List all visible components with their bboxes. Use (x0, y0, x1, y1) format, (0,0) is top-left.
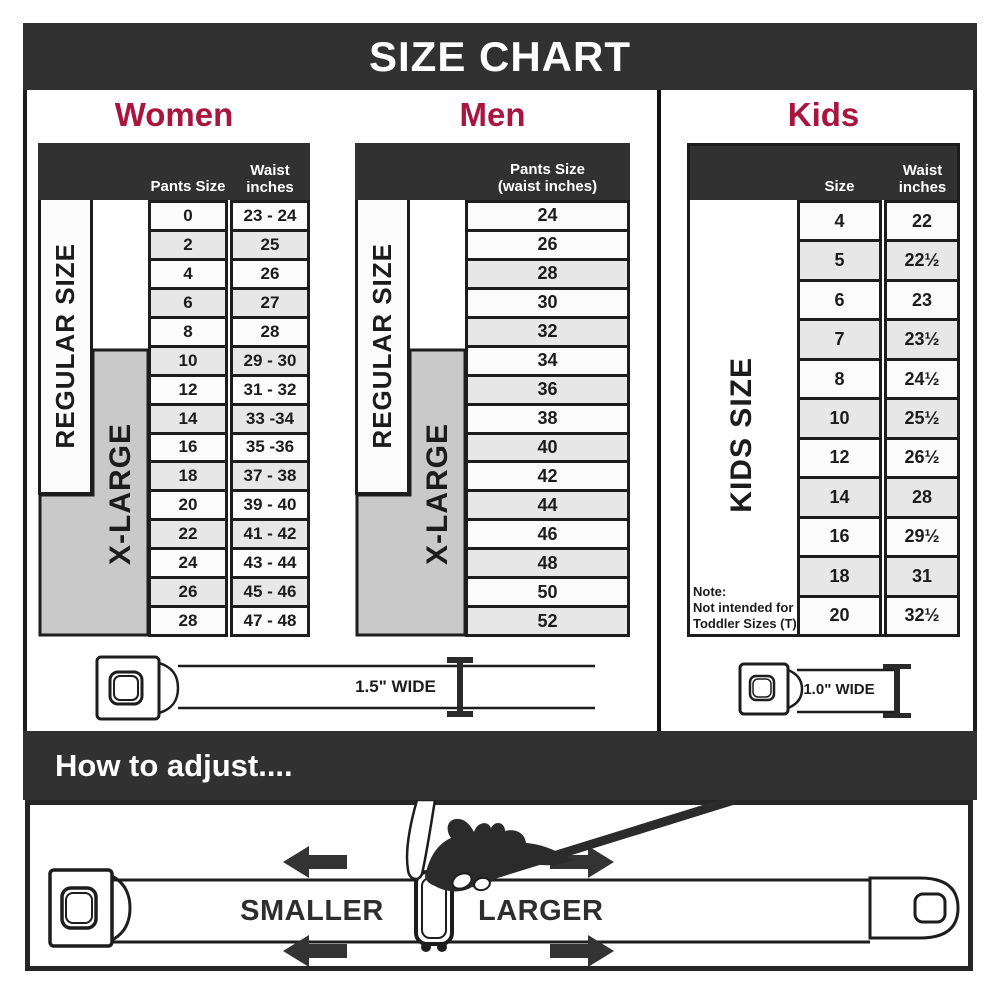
table-cell: 40 (465, 432, 630, 464)
men-heading: Men (355, 96, 630, 134)
adjust-belt-illustration (25, 800, 973, 971)
adjust-heading: How to adjust.... (23, 748, 293, 784)
men-regular-size-box: REGULAR SIZE (355, 200, 410, 495)
kids-size-zone: KIDS SIZE Note: Not intended for Toddler… (687, 200, 797, 637)
table-cell: 14 (148, 403, 228, 435)
table-cell: 46 (465, 518, 630, 550)
table-cell: 26 (148, 576, 228, 608)
table-cell: 8 (797, 358, 882, 400)
seatbelt-buckle-icon (97, 657, 178, 719)
table-cell: 7 (797, 318, 882, 360)
women-size-zone: REGULAR SIZE X-LARGE (38, 200, 148, 637)
table-cell: 25 (230, 229, 310, 261)
table-row: 1635 -36 (148, 432, 310, 464)
table-row: 44 (465, 489, 630, 521)
table-row: 46 (465, 518, 630, 550)
table-cell: 32½ (884, 595, 960, 637)
table-cell: 24 (148, 547, 228, 579)
table-row: 2443 - 44 (148, 547, 310, 579)
belt-tip-icon (870, 878, 958, 938)
table-cell: 16 (148, 432, 228, 464)
table-row: 824½ (797, 358, 960, 400)
table-cell: 48 (465, 547, 630, 579)
table-cell: 12 (797, 437, 882, 479)
kids-heading: Kids (687, 96, 960, 134)
hand-pull-illustration (407, 800, 731, 892)
women-table-header: Pants Size Waist inches (38, 143, 310, 200)
table-row: 522½ (797, 239, 960, 281)
table-row: 24 (465, 200, 630, 232)
women-col1-header: Pants Size (148, 178, 228, 195)
table-cell: 31 (884, 555, 960, 597)
table-cell: 35 -36 (230, 432, 310, 464)
table-cell: 6 (797, 279, 882, 321)
table-row: 1226½ (797, 437, 960, 479)
table-cell: 23½ (884, 318, 960, 360)
men-col-header: Pants Size (waist inches) (465, 161, 630, 195)
table-row: 1629½ (797, 516, 960, 558)
men-table-header: Pants Size (waist inches) (355, 143, 630, 200)
table-cell: 28 (148, 605, 228, 637)
table-cell: 50 (465, 576, 630, 608)
table-cell: 52 (465, 605, 630, 637)
table-cell: 32 (465, 316, 630, 348)
men-table-rows: 242628303234363840424446485052 (465, 200, 630, 637)
women-heading: Women (38, 96, 310, 134)
table-row: 42 (465, 460, 630, 492)
table-cell: 26 (230, 258, 310, 290)
table-cell: 29 - 30 (230, 345, 310, 377)
women-col2-header: Waist inches (230, 162, 310, 196)
table-row: 30 (465, 287, 630, 319)
table-cell: 42 (465, 460, 630, 492)
table-cell: 39 - 40 (230, 489, 310, 521)
table-cell: 30 (465, 287, 630, 319)
table-cell: 22 (148, 518, 228, 550)
table-row: 1433 -34 (148, 403, 310, 435)
kids-col2-header: Waist inches (885, 162, 960, 196)
table-row: 26 (465, 229, 630, 261)
table-row: 38 (465, 403, 630, 435)
table-row: 623 (797, 279, 960, 321)
table-cell: 36 (465, 374, 630, 406)
arrow-right-icon (550, 935, 614, 967)
table-row: 2039 - 40 (148, 489, 310, 521)
table-row: 34 (465, 345, 630, 377)
men-regular-size-label: REGULAR SIZE (367, 243, 398, 449)
table-cell: 4 (148, 258, 228, 290)
table-row: 422 (797, 200, 960, 242)
table-row: 828 (148, 316, 310, 348)
women-regular-size-box: REGULAR SIZE (38, 200, 93, 495)
table-cell: 23 (884, 279, 960, 321)
table-row: 1025½ (797, 397, 960, 439)
women-regular-size-label: REGULAR SIZE (50, 243, 81, 449)
table-cell: 31 - 32 (230, 374, 310, 406)
table-cell: 37 - 38 (230, 460, 310, 492)
table-cell: 33 -34 (230, 403, 310, 435)
kids-size-label: KIDS SIZE (725, 357, 759, 513)
women-xlarge-label: X-LARGE (104, 423, 138, 565)
table-cell: 14 (797, 476, 882, 518)
table-cell: 10 (797, 397, 882, 439)
table-cell: 27 (230, 287, 310, 319)
table-cell: 2 (148, 229, 228, 261)
kids-table-header: Size Waist inches (687, 143, 960, 200)
men-size-zone: REGULAR SIZE X-LARGE (355, 200, 465, 637)
table-cell: 18 (148, 460, 228, 492)
table-row: 40 (465, 432, 630, 464)
table-cell: 28 (884, 476, 960, 518)
table-row: 426 (148, 258, 310, 290)
table-row: 1029 - 30 (148, 345, 310, 377)
kids-note: Note: Not intended for Toddler Sizes (T) (693, 584, 797, 632)
adjust-section-bar: How to adjust.... (23, 731, 977, 800)
kids-table-rows: 422522½623723½824½1025½1226½14281629½183… (797, 200, 960, 637)
table-row: 023 - 24 (148, 200, 310, 232)
table-cell: 28 (230, 316, 310, 348)
table-row: 627 (148, 287, 310, 319)
table-cell: 24 (465, 200, 630, 232)
table-row: 1428 (797, 476, 960, 518)
table-row: 1831 (797, 555, 960, 597)
table-cell: 10 (148, 345, 228, 377)
table-cell: 4 (797, 200, 882, 242)
table-cell: 20 (797, 595, 882, 637)
table-row: 36 (465, 374, 630, 406)
table-row: 48 (465, 547, 630, 579)
page-title: SIZE CHART (369, 33, 631, 81)
table-cell: 47 - 48 (230, 605, 310, 637)
table-cell: 28 (465, 258, 630, 290)
kids-col1-header: Size (797, 178, 882, 195)
width-measure-icon (883, 664, 911, 718)
arrow-left-icon (283, 846, 347, 878)
table-cell: 45 - 46 (230, 576, 310, 608)
table-row: 2241 - 42 (148, 518, 310, 550)
table-row: 32 (465, 316, 630, 348)
table-cell: 20 (148, 489, 228, 521)
women-xlarge-area: X-LARGE (93, 350, 148, 637)
table-cell: 18 (797, 555, 882, 597)
table-cell: 22 (884, 200, 960, 242)
men-xlarge-label: X-LARGE (421, 423, 455, 565)
section-divider (657, 90, 661, 731)
table-cell: 26½ (884, 437, 960, 479)
table-cell: 16 (797, 516, 882, 558)
table-row: 52 (465, 605, 630, 637)
table-cell: 6 (148, 287, 228, 319)
seatbelt-buckle-icon (50, 870, 130, 946)
title-bar: SIZE CHART (23, 23, 977, 90)
table-row: 225 (148, 229, 310, 261)
table-cell: 0 (148, 200, 228, 232)
kids-size-label-area: KIDS SIZE (687, 255, 797, 615)
table-cell: 23 - 24 (230, 200, 310, 232)
table-row: 1837 - 38 (148, 460, 310, 492)
adult-belt-width-label: 1.5" WIDE (343, 677, 448, 697)
arrow-left-icon (283, 935, 347, 967)
table-row: 723½ (797, 318, 960, 360)
table-cell: 43 - 44 (230, 547, 310, 579)
table-cell: 29½ (884, 516, 960, 558)
table-cell: 38 (465, 403, 630, 435)
table-cell: 8 (148, 316, 228, 348)
men-xlarge-area: X-LARGE (410, 350, 465, 637)
table-cell: 34 (465, 345, 630, 377)
table-cell: 25½ (884, 397, 960, 439)
table-row: 50 (465, 576, 630, 608)
table-cell: 41 - 42 (230, 518, 310, 550)
smaller-label: SMALLER (238, 895, 386, 928)
size-chart-infographic: SIZE CHART Women Men Kids Pants Size Wai… (0, 0, 1000, 1000)
table-cell: 12 (148, 374, 228, 406)
table-cell: 26 (465, 229, 630, 261)
women-table-rows: 023 - 242254266278281029 - 301231 - 3214… (148, 200, 310, 637)
table-row: 2032½ (797, 595, 960, 637)
table-cell: 22½ (884, 239, 960, 281)
larger-label: LARGER (478, 895, 603, 928)
table-row: 2847 - 48 (148, 605, 310, 637)
table-row: 28 (465, 258, 630, 290)
table-cell: 44 (465, 489, 630, 521)
table-row: 1231 - 32 (148, 374, 310, 406)
kids-belt-width-label: 1.0" WIDE (793, 681, 885, 698)
table-row: 2645 - 46 (148, 576, 310, 608)
table-cell: 5 (797, 239, 882, 281)
table-cell: 24½ (884, 358, 960, 400)
